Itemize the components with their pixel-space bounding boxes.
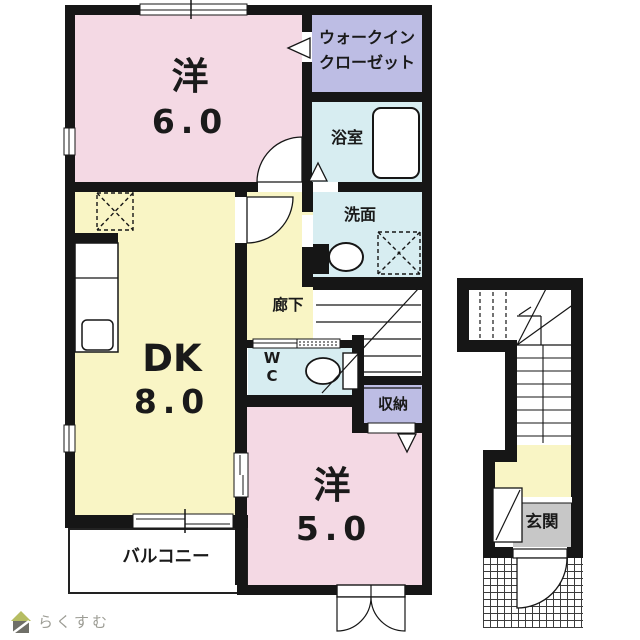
label-washroom: 洗面: [324, 206, 396, 224]
door-openings: [253, 215, 572, 503]
up-arrow-barb: [519, 307, 531, 315]
staircase-annex: [480, 283, 574, 443]
logo: らくすむ: [8, 608, 158, 636]
label-balcony: バルコニー: [86, 548, 246, 567]
label-bathroom: 浴室: [311, 129, 383, 147]
refrigerator-space: [97, 193, 133, 230]
label-wc-c: C: [258, 368, 286, 385]
door-marker-storage: [398, 434, 416, 452]
sliding-door-dk-west5: [234, 453, 248, 497]
entrance-door: [513, 549, 567, 608]
logo-text: らくすむ: [38, 611, 110, 632]
door-arc-west6: [257, 137, 302, 182]
toilet: [306, 353, 358, 389]
label-wic-line1: ウォークイン: [312, 29, 422, 47]
wash-basin: [329, 243, 363, 271]
label-wic-line2: クローゼット: [312, 54, 422, 72]
washing-machine-space: [378, 232, 420, 274]
kitchen-counter: [75, 243, 118, 352]
label-west5-size: 5.0: [284, 511, 384, 547]
house-icon: [8, 608, 34, 636]
floor-plan: 洋 6.0 ウォークイン クローゼット 浴室 洗面 廊下 W C 収納 DK 8…: [0, 0, 640, 640]
label-wc-w: W: [258, 350, 286, 367]
kitchen-sink: [82, 320, 113, 350]
door-arc-dk: [247, 197, 293, 243]
label-hallway: 廊下: [262, 297, 314, 314]
label-dk-size: 8.0: [122, 384, 222, 420]
label-dk: DK: [122, 339, 222, 380]
label-storage: 収納: [364, 396, 422, 413]
label-genkan: 玄関: [512, 513, 572, 531]
label-west6-size: 6.0: [140, 104, 240, 140]
label-west5-kanji: 洋: [297, 466, 367, 507]
double-door-west5: [337, 585, 405, 631]
label-west6-kanji: 洋: [155, 57, 225, 98]
vanity-cabinet: [313, 244, 329, 274]
door-marker-wic: [288, 38, 310, 58]
balcony-sliding-door: [133, 514, 233, 528]
